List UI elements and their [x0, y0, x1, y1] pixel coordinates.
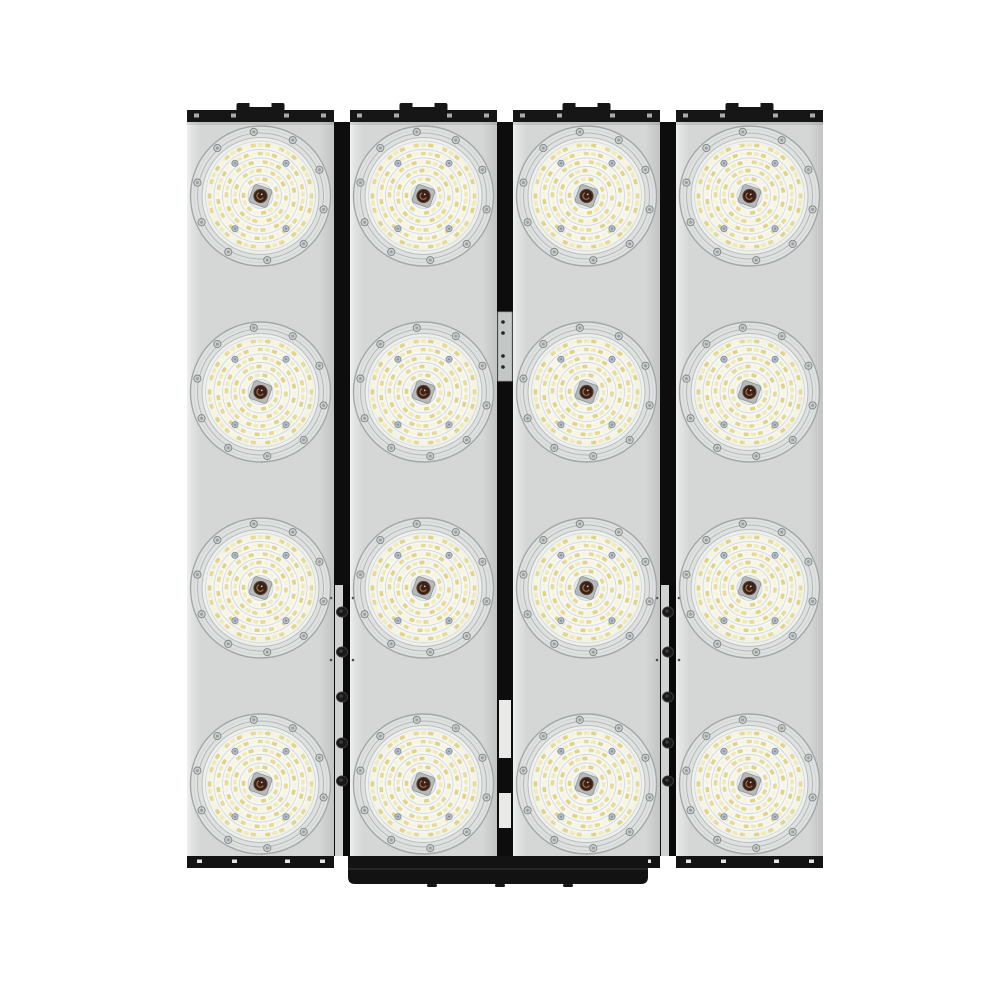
- led-module-r1-c1: [191, 126, 331, 266]
- lens-screw: [395, 618, 401, 624]
- rim-screw: [225, 248, 232, 255]
- lens-screw: [772, 160, 778, 166]
- rim-screw: [194, 767, 201, 774]
- lens-screw: [721, 356, 727, 362]
- rim-screw: [214, 536, 221, 543]
- rim-screw: [615, 725, 622, 732]
- rim-screw: [289, 529, 296, 536]
- rim-screw: [683, 179, 690, 186]
- module-center-hub: [248, 576, 273, 601]
- rim-screw: [753, 453, 760, 460]
- rim-screw: [642, 558, 649, 565]
- lens-screw: [446, 552, 452, 558]
- lens-screw: [609, 748, 615, 754]
- rim-screw: [361, 415, 368, 422]
- rim-screw: [320, 402, 327, 409]
- rim-screw: [642, 166, 649, 173]
- rim-screw: [463, 240, 470, 247]
- rim-screw: [703, 732, 710, 739]
- rim-screw: [789, 632, 796, 639]
- rim-screw: [551, 444, 558, 451]
- rim-screw: [778, 529, 785, 536]
- rail-screw: [774, 860, 779, 864]
- connector-plate: [498, 312, 512, 381]
- rim-screw: [520, 375, 527, 382]
- rim-screw: [225, 640, 232, 647]
- rim-screw: [377, 144, 384, 151]
- rim-screw: [646, 402, 653, 409]
- lens-screw: [558, 422, 564, 428]
- hinge-knob: [663, 607, 674, 617]
- rim-screw: [642, 754, 649, 761]
- rim-screw: [479, 166, 486, 173]
- rim-screw: [739, 520, 746, 527]
- rim-screw: [316, 558, 323, 565]
- bottom-rail-1: [187, 856, 334, 868]
- rim-screw: [646, 206, 653, 213]
- rim-screw: [264, 257, 271, 264]
- hinge-knob: [663, 647, 674, 657]
- lens-screw: [558, 814, 564, 820]
- rim-screw: [388, 836, 395, 843]
- rim-screw: [576, 520, 583, 527]
- lens-screw: [283, 618, 289, 624]
- lens-screw: [395, 552, 401, 558]
- lens-screw: [232, 618, 238, 624]
- lens-screw: [609, 226, 615, 232]
- rim-screw: [264, 845, 271, 852]
- rim-screw: [452, 529, 459, 536]
- rim-screw: [520, 571, 527, 578]
- led-module-r2-c4: [680, 322, 820, 462]
- led-module-r1-c2: [354, 126, 494, 266]
- rim-screw: [683, 767, 690, 774]
- rim-screw: [194, 375, 201, 382]
- rim-screw: [646, 598, 653, 605]
- hinge-knob: [337, 776, 348, 786]
- rim-screw: [427, 453, 434, 460]
- rim-screw: [361, 611, 368, 618]
- rim-screw: [626, 436, 633, 443]
- lens-screw: [721, 552, 727, 558]
- rim-screw: [250, 128, 257, 135]
- module-center-hub: [737, 184, 762, 209]
- rim-screw: [316, 754, 323, 761]
- rim-screw: [427, 845, 434, 852]
- rail-screw: [720, 114, 725, 118]
- led-module-r2-c1: [191, 322, 331, 462]
- lens-screw: [446, 814, 452, 820]
- rim-screw: [576, 324, 583, 331]
- rim-screw: [789, 828, 796, 835]
- lens-screw: [721, 618, 727, 624]
- rim-screw: [809, 794, 816, 801]
- lens-screw: [721, 748, 727, 754]
- module-center-hub: [574, 380, 599, 405]
- lens-screw: [395, 748, 401, 754]
- lens-screw: [232, 552, 238, 558]
- rim-screw: [809, 206, 816, 213]
- rim-screw: [590, 649, 597, 656]
- rim-screw: [551, 640, 558, 647]
- rail-screw: [557, 114, 562, 118]
- lens-screw: [283, 422, 289, 428]
- lens-screw: [446, 356, 452, 362]
- hinge-knob: [337, 607, 348, 617]
- lens-screw: [772, 748, 778, 754]
- rim-screw: [413, 128, 420, 135]
- rail-screw: [285, 860, 290, 864]
- lens-screw: [558, 748, 564, 754]
- rim-screw: [300, 240, 307, 247]
- rim-screw: [687, 219, 694, 226]
- rim-screw: [590, 257, 597, 264]
- rim-screw: [225, 836, 232, 843]
- lens-screw: [558, 356, 564, 362]
- rail-screw: [686, 860, 691, 864]
- rim-screw: [427, 257, 434, 264]
- hinge-knob: [663, 776, 674, 786]
- rim-screw: [714, 836, 721, 843]
- rail-screw: [610, 114, 615, 118]
- rail-screw: [284, 114, 289, 118]
- rim-screw: [590, 453, 597, 460]
- lens-screw: [395, 814, 401, 820]
- rim-screw: [250, 520, 257, 527]
- module-center-hub: [411, 184, 436, 209]
- rim-screw: [250, 716, 257, 723]
- rail-screw: [231, 114, 236, 118]
- rail-screw: [321, 114, 326, 118]
- rim-screw: [377, 536, 384, 543]
- rim-screw: [289, 137, 296, 144]
- rim-screw: [615, 333, 622, 340]
- rim-screw: [642, 362, 649, 369]
- module-center-hub: [574, 576, 599, 601]
- rail-screw: [320, 860, 325, 864]
- lens-screw: [772, 356, 778, 362]
- hinge-knob: [663, 692, 674, 702]
- module-center-hub: [248, 380, 273, 405]
- rim-screw: [320, 794, 327, 801]
- rail-screw: [647, 114, 652, 118]
- rim-screw: [320, 598, 327, 605]
- rim-screw: [264, 453, 271, 460]
- lens-screw: [395, 356, 401, 362]
- rim-screw: [687, 807, 694, 814]
- led-module-r1-c4: [680, 126, 820, 266]
- rim-screw: [778, 725, 785, 732]
- rim-screw: [377, 732, 384, 739]
- rim-screw: [357, 767, 364, 774]
- led-module-r3-c4: [680, 518, 820, 658]
- lens-screw: [283, 814, 289, 820]
- rail-screw: [447, 114, 452, 118]
- led-module-r4-c4: [680, 714, 820, 854]
- rim-screw: [198, 611, 205, 618]
- rim-screw: [778, 137, 785, 144]
- rim-screw: [463, 436, 470, 443]
- lens-screw: [558, 618, 564, 624]
- hinge-knob: [337, 647, 348, 657]
- rim-screw: [483, 206, 490, 213]
- hinge-knob: [337, 692, 348, 702]
- rim-screw: [615, 529, 622, 536]
- rim-screw: [316, 166, 323, 173]
- rim-screw: [427, 649, 434, 656]
- lens-screw: [232, 226, 238, 232]
- floodlight-fixture: [0, 0, 1000, 1000]
- rail-screw: [394, 114, 399, 118]
- rim-screw: [479, 754, 486, 761]
- rim-screw: [463, 828, 470, 835]
- rim-screw: [198, 219, 205, 226]
- rim-screw: [739, 324, 746, 331]
- rim-screw: [483, 794, 490, 801]
- rim-screw: [626, 828, 633, 835]
- rim-screw: [540, 732, 547, 739]
- rail-screw: [484, 114, 489, 118]
- lens-screw: [721, 814, 727, 820]
- rim-screw: [753, 649, 760, 656]
- lens-screw: [558, 226, 564, 232]
- rim-screw: [225, 444, 232, 451]
- rim-screw: [714, 248, 721, 255]
- rim-screw: [703, 340, 710, 347]
- lens-screw: [283, 160, 289, 166]
- rim-screw: [377, 340, 384, 347]
- lens-screw: [232, 748, 238, 754]
- led-module-r4-c2: [354, 714, 494, 854]
- rim-screw: [357, 375, 364, 382]
- led-module-r4-c3: [517, 714, 657, 854]
- lens-screw: [772, 814, 778, 820]
- rim-screw: [753, 257, 760, 264]
- lens-screw: [232, 160, 238, 166]
- rim-screw: [300, 828, 307, 835]
- rim-screw: [483, 598, 490, 605]
- rim-screw: [576, 128, 583, 135]
- product-photo: [0, 0, 1000, 1000]
- led-module-r1-c3: [517, 126, 657, 266]
- rim-screw: [198, 415, 205, 422]
- rim-screw: [703, 144, 710, 151]
- rim-screw: [789, 436, 796, 443]
- led-module-r3-c2: [354, 518, 494, 658]
- module-center-hub: [411, 380, 436, 405]
- lens-screw: [609, 422, 615, 428]
- rim-screw: [805, 362, 812, 369]
- lens-screw: [446, 748, 452, 754]
- rim-screw: [646, 794, 653, 801]
- rim-screw: [300, 436, 307, 443]
- rim-screw: [687, 611, 694, 618]
- rim-screw: [413, 324, 420, 331]
- module-center-hub: [737, 772, 762, 797]
- rim-screw: [214, 340, 221, 347]
- rim-screw: [683, 571, 690, 578]
- rail-screw: [357, 114, 362, 118]
- lens-screw: [772, 226, 778, 232]
- rim-screw: [739, 128, 746, 135]
- rim-screw: [198, 807, 205, 814]
- rail-screw: [232, 860, 237, 864]
- rim-screw: [778, 333, 785, 340]
- lens-screw: [721, 160, 727, 166]
- rim-screw: [289, 725, 296, 732]
- lens-screw: [446, 618, 452, 624]
- lens-screw: [395, 160, 401, 166]
- lens-screw: [446, 226, 452, 232]
- lens-screw: [283, 356, 289, 362]
- rim-screw: [479, 558, 486, 565]
- led-module-r2-c2: [354, 322, 494, 462]
- lens-screw: [721, 226, 727, 232]
- rim-screw: [357, 179, 364, 186]
- rail-screw: [810, 114, 815, 118]
- rim-screw: [626, 632, 633, 639]
- module-center-hub: [248, 772, 273, 797]
- lens-screw: [772, 422, 778, 428]
- module-center-hub: [737, 380, 762, 405]
- lens-screw: [232, 814, 238, 820]
- lens-screw: [395, 422, 401, 428]
- rim-screw: [264, 649, 271, 656]
- module-center-hub: [411, 772, 436, 797]
- rim-screw: [789, 240, 796, 247]
- rim-screw: [703, 536, 710, 543]
- rim-screw: [250, 324, 257, 331]
- rail-screw: [773, 114, 778, 118]
- rim-screw: [524, 415, 531, 422]
- rim-screw: [214, 144, 221, 151]
- rim-screw: [357, 571, 364, 578]
- rim-screw: [320, 206, 327, 213]
- rail-screw: [721, 860, 726, 864]
- rim-screw: [576, 716, 583, 723]
- rail-screw: [683, 114, 688, 118]
- rim-screw: [361, 807, 368, 814]
- lens-screw: [395, 226, 401, 232]
- lens-screw: [446, 160, 452, 166]
- module-center-hub: [411, 576, 436, 601]
- rim-screw: [540, 536, 547, 543]
- rim-screw: [739, 716, 746, 723]
- lens-screw: [772, 552, 778, 558]
- rim-screw: [214, 732, 221, 739]
- rim-screw: [413, 520, 420, 527]
- rim-screw: [388, 248, 395, 255]
- rim-screw: [714, 640, 721, 647]
- led-module-r3-c3: [517, 518, 657, 658]
- lens-screw: [283, 748, 289, 754]
- rim-screw: [194, 179, 201, 186]
- led-module-r2-c3: [517, 322, 657, 462]
- rim-screw: [540, 340, 547, 347]
- rim-screw: [524, 219, 531, 226]
- rim-screw: [483, 402, 490, 409]
- rim-screw: [452, 725, 459, 732]
- lens-screw: [609, 618, 615, 624]
- bottom-rail-4: [676, 856, 823, 868]
- rim-screw: [809, 598, 816, 605]
- rim-screw: [388, 640, 395, 647]
- rail-screw: [197, 860, 202, 864]
- rim-screw: [753, 845, 760, 852]
- module-center-hub: [248, 184, 273, 209]
- rim-screw: [452, 137, 459, 144]
- rim-screw: [590, 845, 597, 852]
- lens-screw: [609, 814, 615, 820]
- rim-screw: [289, 333, 296, 340]
- module-center-hub: [737, 576, 762, 601]
- rim-screw: [520, 767, 527, 774]
- lens-screw: [609, 160, 615, 166]
- rim-screw: [524, 611, 531, 618]
- rim-screw: [626, 240, 633, 247]
- lens-screw: [283, 226, 289, 232]
- rim-screw: [452, 333, 459, 340]
- module-center-hub: [574, 184, 599, 209]
- rim-screw: [551, 836, 558, 843]
- rim-screw: [413, 716, 420, 723]
- rim-screw: [300, 632, 307, 639]
- panel-gap-2: [497, 122, 513, 856]
- module-center-hub: [574, 772, 599, 797]
- lens-screw: [446, 422, 452, 428]
- rim-screw: [805, 754, 812, 761]
- lens-screw: [232, 422, 238, 428]
- rim-screw: [194, 571, 201, 578]
- rim-screw: [540, 144, 547, 151]
- hinge-knob: [337, 738, 348, 748]
- rail-screw: [520, 114, 525, 118]
- rail-screw: [194, 114, 199, 118]
- rim-screw: [520, 179, 527, 186]
- rim-screw: [683, 375, 690, 382]
- lens-screw: [558, 552, 564, 558]
- lens-screw: [232, 356, 238, 362]
- lens-screw: [609, 552, 615, 558]
- led-module-r4-c1: [191, 714, 331, 854]
- lens-screw: [609, 356, 615, 362]
- rim-screw: [524, 807, 531, 814]
- hinge-knob: [663, 738, 674, 748]
- lens-screw: [558, 160, 564, 166]
- mounting-bracket: [348, 856, 648, 887]
- lens-screw: [283, 552, 289, 558]
- rim-screw: [805, 166, 812, 173]
- rim-screw: [361, 219, 368, 226]
- led-module-r3-c1: [191, 518, 331, 658]
- rim-screw: [463, 632, 470, 639]
- rim-screw: [479, 362, 486, 369]
- rim-screw: [316, 362, 323, 369]
- rim-screw: [687, 415, 694, 422]
- rim-screw: [714, 444, 721, 451]
- rim-screw: [805, 558, 812, 565]
- rim-screw: [809, 402, 816, 409]
- rim-screw: [551, 248, 558, 255]
- lens-screw: [721, 422, 727, 428]
- rim-screw: [388, 444, 395, 451]
- rim-screw: [615, 137, 622, 144]
- rail-screw: [809, 860, 814, 864]
- lens-screw: [772, 618, 778, 624]
